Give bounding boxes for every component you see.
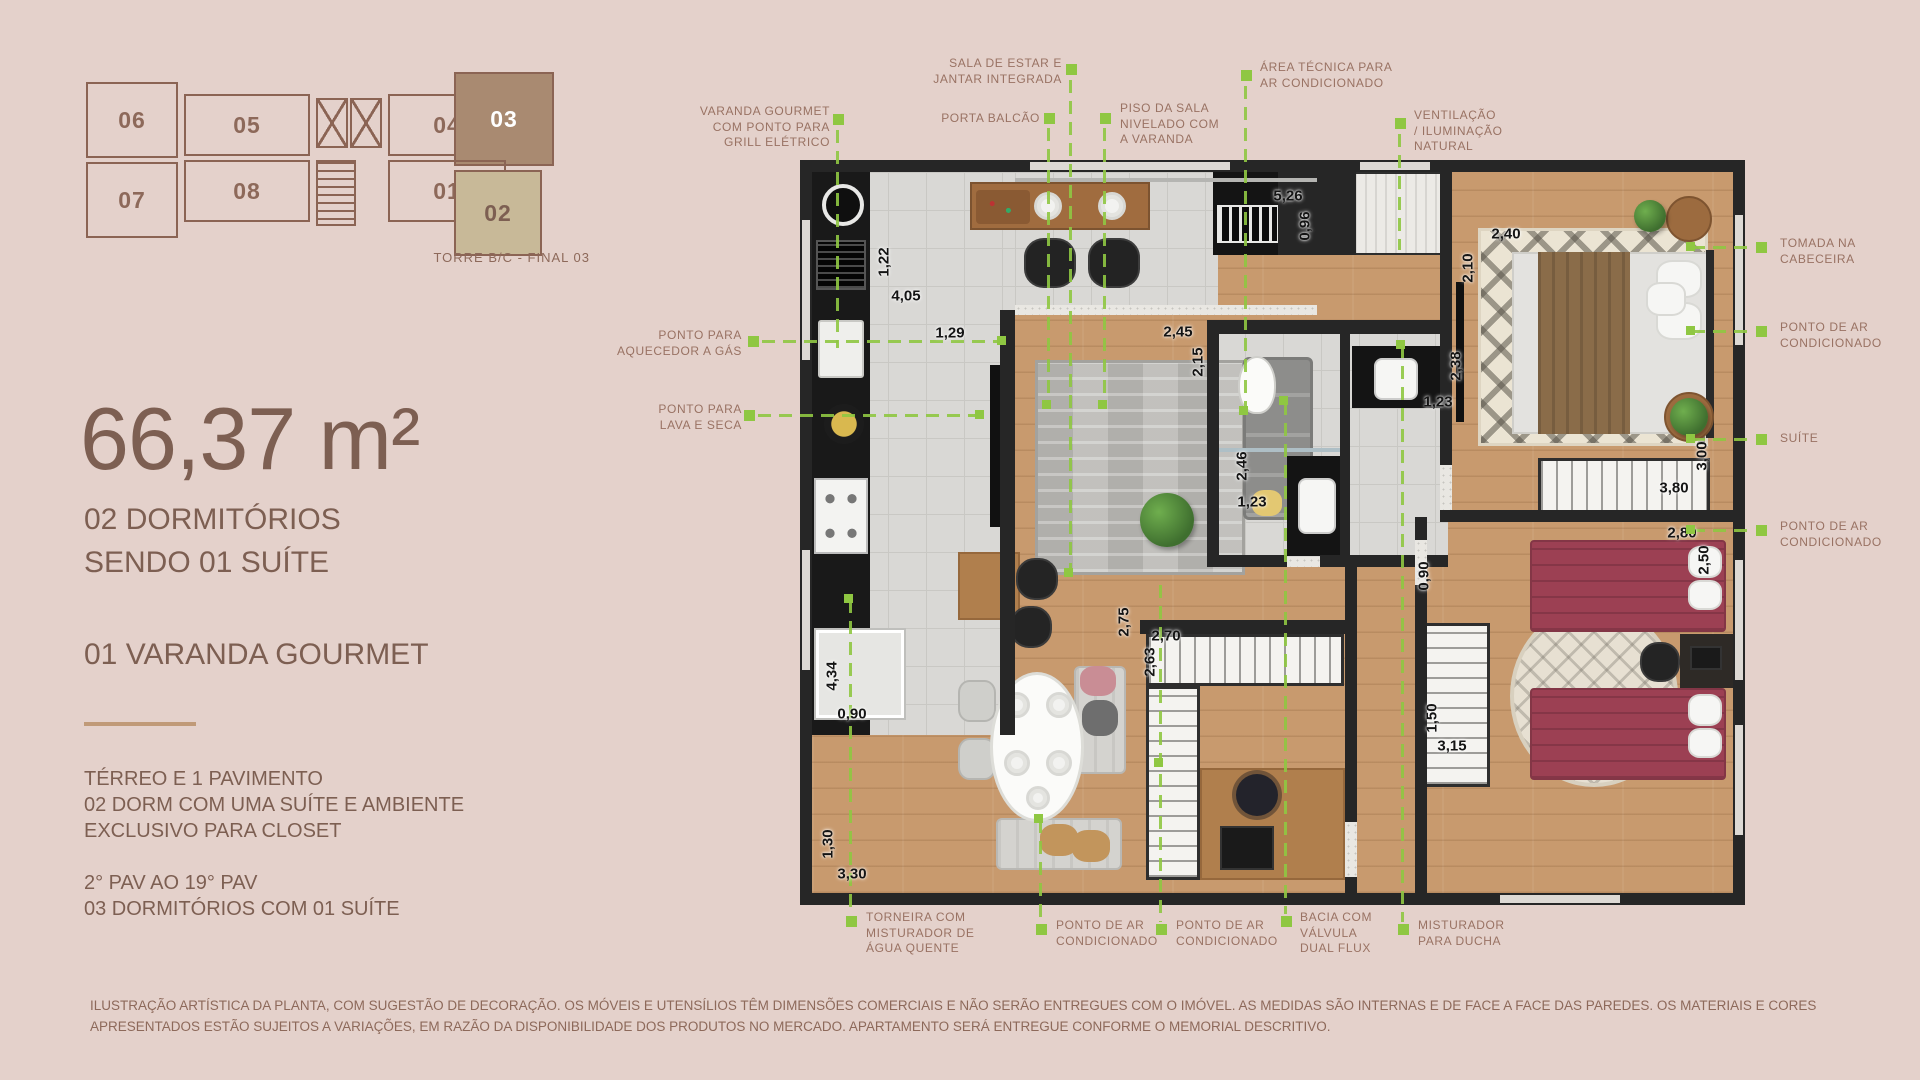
key-plan-unit-08: 08 [184,160,310,222]
callout-target-marker [1686,242,1695,251]
dimension-label: 4,34 [824,661,841,690]
area-tecnica-label: ÁREA TÉCNICA PARA AR CONDICIONADO [1260,60,1450,91]
callout-line [1039,820,1042,922]
fruit [824,404,864,444]
win [1360,162,1430,170]
floor-plan-illustration [800,160,1745,908]
divider [84,722,196,726]
dimension-label: 2,50 [1696,545,1713,574]
pillow [1646,282,1686,316]
dimension-label: 1,29 [935,325,964,342]
win [1735,725,1743,835]
dimension-label: 3,80 [1659,480,1688,497]
ponto-ar-suite-label: PONTO DE AR CONDICIONADO [1780,320,1920,351]
dimension-label: 2,40 [1491,226,1520,243]
area-title: 66,37 m² [80,388,419,490]
callout-marker [1395,118,1406,129]
plate [1004,750,1030,776]
dimension-label: 2,46 [1234,451,1251,480]
marble [1287,557,1320,567]
lava-seca-label: PONTO PARA LAVA E SECA [570,402,742,433]
callout-target-marker [1279,396,1288,405]
plant [1634,200,1666,232]
wall [1000,310,1015,735]
ventilacao-natural-label: VENTILAÇÃO / ILUMINAÇÃO NATURAL [1414,108,1544,155]
disclaimer-text: ILUSTRAÇÃO ARTÍSTICA DA PLANTA, COM SUGE… [90,995,1848,1037]
varanda-headline: 01 VARANDA GOURMET [84,638,429,672]
porta-balcao-label: PORTA BALCÃO [890,111,1040,127]
key-plan-unit-06: 06 [86,82,178,158]
wall [1448,510,1745,522]
win [1735,215,1743,345]
chair-dark [1010,606,1052,648]
chair-lt [958,680,996,722]
sink-rect [1374,358,1418,400]
wall [1207,320,1219,567]
callout-marker [1036,924,1047,935]
stair-core [316,160,356,226]
vase [1236,774,1278,816]
plate [1046,692,1072,718]
callout-target-marker [1686,525,1695,534]
marble [1015,305,1317,315]
callout-marker [1066,64,1077,75]
callout-line [1284,402,1287,914]
grill [816,240,866,290]
aquecedor-gas-label: PONTO PARA AQUECEDOR A GÁS [570,328,742,359]
callout-target-marker [1042,400,1051,409]
pillow-p [1080,666,1116,696]
callout-target-marker [997,336,1006,345]
floors-info-upper: 2° PAV AO 19° PAV 03 DORMITÓRIOS COM 01 … [84,870,400,922]
piso-sala-label: PISO DA SALA NIVELADO COM A VARANDA [1120,101,1250,148]
marble [1440,465,1452,510]
appl [818,320,864,378]
callout-marker [846,916,857,927]
tv [990,365,1000,527]
suite-label: SUÍTE [1780,431,1900,447]
dimension-label: 1,23 [1423,394,1452,411]
callout-line [836,130,839,348]
bacia-dual-flux-label: BACIA COM VÁLVULA DUAL FLUX [1300,910,1430,957]
dimension-label: 0,96 [1297,211,1314,240]
callout-marker [1756,525,1767,536]
dimension-label: 1,50 [1424,703,1441,732]
dimension-label: 4,05 [891,288,920,305]
callout-line [1398,134,1401,250]
dimension-label: 2,10 [1460,253,1477,282]
dimension-label: 0,90 [1416,561,1433,590]
callout-marker [833,114,844,125]
dimension-label: 2,70 [1151,628,1180,645]
varanda-gourmet-label: VARANDA GOURMET COM PONTO PARA GRILL ELÉ… [630,104,830,151]
callout-line [1103,128,1106,406]
callout-marker [748,336,759,347]
laptop [1220,826,1274,870]
callout-marker [1756,242,1767,253]
torneira-agua-quente-label: TORNEIRA COM MISTURADOR DE ÁGUA QUENTE [866,910,1026,957]
bedrooms-headline: 02 DORMITÓRIOS SENDO 01 SUÍTE [84,498,341,584]
misturador-ducha-label: MISTURADOR PARA DUCHA [1418,918,1558,949]
key-plan-unit-02: 02 [454,170,542,256]
plant [1140,493,1194,547]
key-plan-unit-07: 07 [86,162,178,238]
hatch-h [1146,686,1200,880]
floors-info-ground: TÉRREO E 1 PAVIMENTO 02 DORM COM UMA SUÍ… [84,766,464,844]
callout-line [1401,345,1404,922]
elevator-core [316,98,348,148]
dimension-label: 2,15 [1190,347,1207,376]
pillow-g [1082,700,1118,736]
dimension-label: 1,23 [1237,494,1266,511]
callout-line [762,340,1002,343]
callout-marker [1756,434,1767,445]
pillow [1688,580,1722,610]
win [1030,162,1230,170]
pillow [1688,728,1722,758]
pillow [1688,694,1722,726]
callout-target-marker [844,594,853,603]
sink-round [822,184,864,226]
callout-line [1692,529,1754,532]
chair-dark [1016,558,1058,600]
dimension-label: 3,15 [1437,738,1466,755]
dimension-label: 1,22 [876,247,893,276]
callout-line [1069,80,1072,575]
plant [1670,398,1708,436]
callout-marker [1398,924,1409,935]
glass [1015,178,1317,182]
marble [1345,822,1357,877]
ac-louver [1217,205,1279,243]
key-plan-unit-03: 03 [454,72,554,166]
dimension-label: 2,75 [1116,607,1133,636]
callout-target-marker [975,410,984,419]
callout-target-marker [1686,326,1695,335]
callout-marker [1241,70,1252,81]
wall [1278,172,1356,255]
callout-line [758,414,980,417]
callout-marker [1156,924,1167,935]
callout-target-marker [1034,814,1043,823]
wall [1340,334,1350,565]
key-plan-unit-05: 05 [184,94,310,156]
callout-target-marker [1064,568,1073,577]
blanket [1538,252,1630,434]
callout-target-marker [1686,434,1695,443]
board [976,190,1030,224]
nightstand [1666,196,1712,242]
dimension-label: 2,45 [1163,324,1192,341]
callout-marker [1100,113,1111,124]
callout-line [1692,246,1754,249]
pillow-br [1072,830,1110,862]
callout-target-marker [1098,400,1107,409]
stove [814,478,868,554]
dimension-label: 5,26 [1273,188,1302,205]
callout-target-marker [1154,758,1163,767]
plate [1046,750,1072,776]
sink-rect [1298,478,1336,534]
ponto-ar-dorm2-label: PONTO DE AR CONDICIONADO [1780,519,1920,550]
plate [1026,786,1050,810]
win [1735,560,1743,680]
callout-line [1047,128,1050,406]
tomada-cabeceira-label: TOMADA NA CABECEIRA [1780,236,1920,267]
key-plan-caption: TORRE B/C - FINAL 03 [70,250,590,265]
chair-dark [1640,642,1680,682]
sala-estar-jantar-label: SALA DE ESTAR E JANTAR INTEGRADA [912,56,1062,87]
key-plan: 0605040307080102 [70,66,575,258]
stool [1088,238,1140,288]
callout-marker [1281,916,1292,927]
callout-target-marker [1396,340,1405,349]
callout-marker [744,410,755,421]
laptop [1690,646,1722,670]
callout-marker [1756,326,1767,337]
callout-marker [1044,113,1055,124]
dimension-label: 2,38 [1448,351,1465,380]
dimension-label: 3,30 [837,866,866,883]
dimension-label: 1,30 [820,829,837,858]
dimension-label: 3,00 [1694,441,1711,470]
win [1500,895,1620,903]
win [802,550,810,670]
callout-target-marker [1239,406,1248,415]
elevator-core [350,98,382,148]
callout-line [1692,330,1754,333]
dimension-label: 2,63 [1142,647,1159,676]
wall [1207,555,1287,567]
win [802,220,810,360]
dimension-label: 0,90 [837,706,866,723]
wall [800,160,1745,172]
